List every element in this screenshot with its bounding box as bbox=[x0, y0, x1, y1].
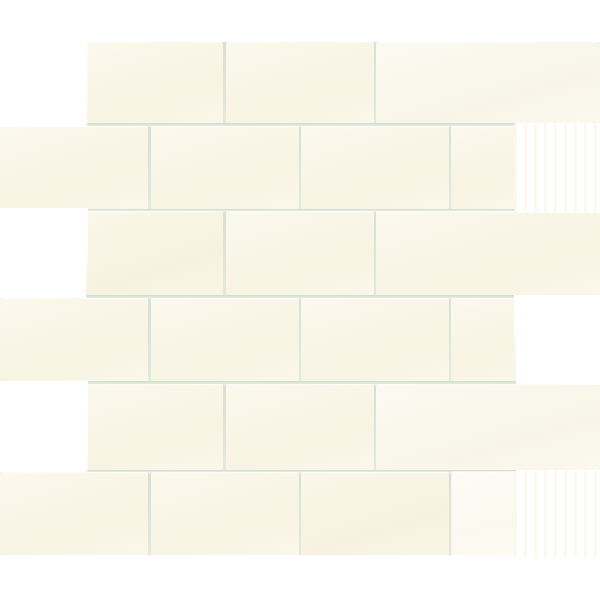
subway-tile-photo bbox=[0, 0, 600, 600]
subway-tile-r5-c1 bbox=[86, 384, 223, 470]
subway-tile-r6-c1 bbox=[0, 472, 148, 555]
glare-right-middle bbox=[514, 295, 600, 385]
subway-tile-r2-c3 bbox=[301, 126, 449, 209]
subway-tile-r4-c4 bbox=[451, 298, 516, 382]
subway-tile-r4-c3 bbox=[301, 298, 449, 382]
subway-tile-r5-c3 bbox=[376, 384, 600, 470]
subway-tile-r5-c2 bbox=[226, 384, 374, 470]
glare-top-left-square bbox=[28, 70, 86, 127]
subway-tile-r6-c3 bbox=[301, 472, 449, 555]
subway-tile-r1-c2 bbox=[226, 42, 374, 123]
subway-tile-r1-c1 bbox=[86, 42, 223, 123]
subway-tile-r2-c1 bbox=[0, 126, 148, 209]
glare-right-upper bbox=[514, 123, 600, 213]
subway-tile-r2-c4 bbox=[451, 126, 516, 209]
subway-tile-r4-c1 bbox=[0, 298, 148, 382]
grout-joint-horizontal-1 bbox=[86, 123, 516, 126]
grout-joint-horizontal-4 bbox=[86, 381, 516, 384]
subway-tile-r2-c2 bbox=[151, 126, 299, 209]
subway-tile-r3-c2 bbox=[226, 211, 374, 295]
grout-joint-horizontal-3 bbox=[86, 295, 516, 298]
glare-left-lower bbox=[0, 381, 88, 472]
glare-right-lower bbox=[514, 471, 600, 557]
grout-joint-horizontal-2 bbox=[86, 209, 516, 212]
subway-tile-r4-c2 bbox=[151, 298, 299, 382]
glare-left-middle bbox=[0, 208, 88, 296]
subway-tile-r1-c3 bbox=[376, 42, 600, 123]
glare-right-lower-band bbox=[452, 471, 516, 557]
subway-tile-r3-c1 bbox=[86, 211, 223, 295]
subway-tile-r3-c3 bbox=[376, 211, 600, 295]
subway-tile-r6-c2 bbox=[151, 472, 299, 555]
